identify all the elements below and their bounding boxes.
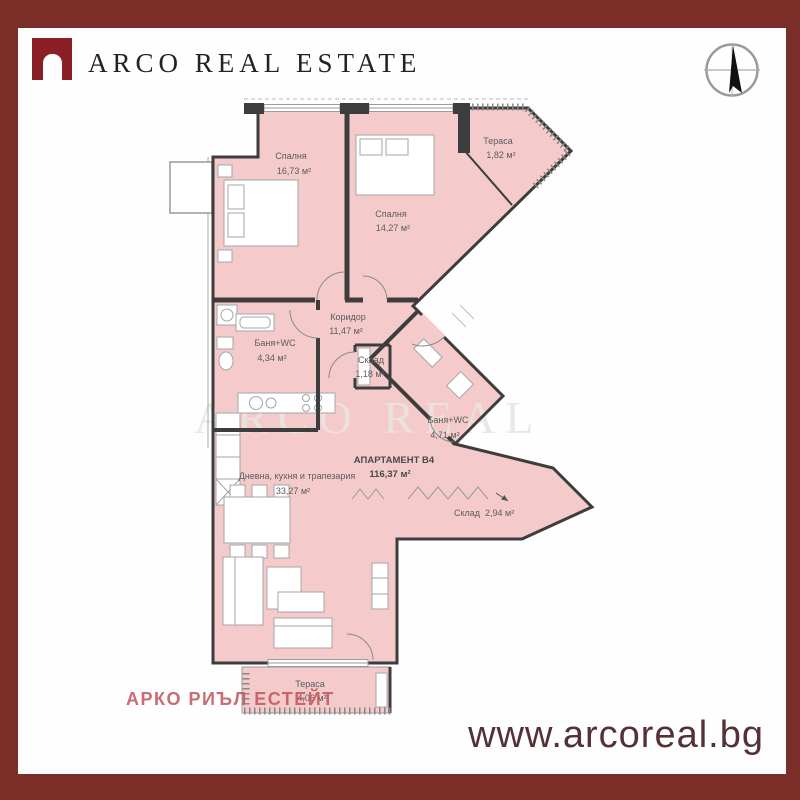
frame-border-left: [0, 0, 18, 800]
room-label: Дневна, кухня и трапезария: [239, 471, 356, 481]
room-area: 4,34 м²: [257, 353, 286, 363]
room-area: 14,27 м²: [376, 223, 410, 233]
brand-name: ARCO REAL ESTATE: [88, 48, 421, 79]
room-label: Баня+WC: [427, 415, 469, 425]
room-area: 16,73 м²: [277, 166, 311, 176]
room-label: Коридор: [330, 312, 366, 322]
room-label: Спалня: [375, 209, 407, 219]
apartment-label: АПАРТАМЕНТ В4: [354, 455, 435, 466]
room-area: 2,94 м²: [485, 508, 514, 518]
frame-border-bottom: [0, 774, 800, 800]
room-label: Спалня: [275, 151, 307, 161]
north-compass-icon: [702, 41, 762, 103]
room-area: 4,71 м²: [430, 430, 459, 440]
facade-projection: [170, 162, 212, 213]
room-label: Тераса: [483, 136, 513, 146]
frame-border-right: [786, 0, 800, 800]
flyer-canvas: ARCO REAL ESTATE ARCO REAL: [0, 0, 800, 800]
room-label: Склад: [454, 508, 481, 518]
floor-plan: ARCO REAL: [160, 95, 642, 723]
room-label: Баня+WC: [254, 338, 296, 348]
room-label: Склад: [358, 355, 385, 365]
room-area: 33,27 м²: [276, 486, 310, 496]
room-label: Тераса: [295, 679, 325, 689]
website-url: www.arcoreal.bg: [468, 714, 764, 757]
room-area: 1,82 м²: [486, 150, 515, 160]
apartment-area: 116,37 м²: [369, 469, 410, 480]
room-area: 11,47 м²: [329, 326, 363, 336]
frame-border-top: [0, 0, 800, 28]
entry-landing: [452, 305, 474, 327]
arch-cutout: [43, 54, 62, 80]
room-area: 1,18 м²: [355, 369, 384, 379]
agency-name-cyrillic: АРКО РИЪЛ ЕСТЕЙТ: [126, 689, 335, 710]
arco-arch-logo-icon: [32, 38, 72, 80]
